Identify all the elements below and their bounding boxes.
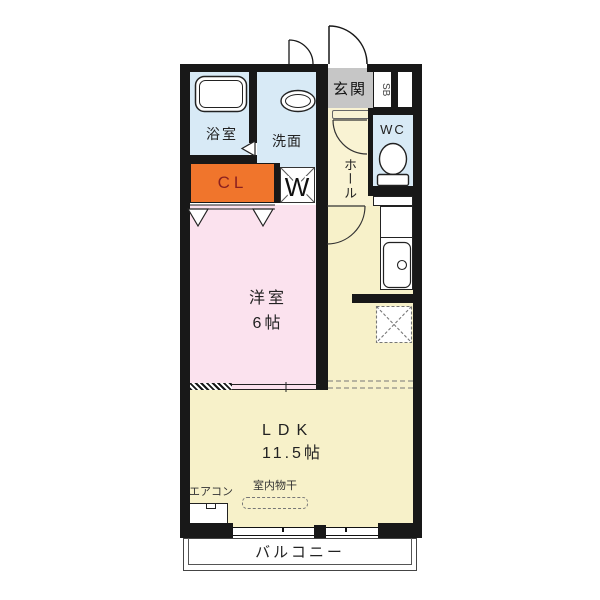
ldk-size: 11.5帖 [262, 445, 323, 462]
shoe-box-label: SB [374, 73, 391, 107]
wall-bottom-left [180, 523, 233, 538]
indoor-drying-label: 室内物干 [243, 480, 307, 493]
entrance-door [329, 26, 367, 64]
western-room-size: 6帖 [253, 315, 284, 332]
wall-left [180, 64, 190, 538]
kitchen-shelf [373, 196, 413, 206]
wall-right [413, 64, 422, 538]
utility-door [289, 40, 313, 64]
wall-sb-divider [392, 70, 397, 108]
balcony-label: バルコニー [183, 544, 417, 562]
washer-box [280, 167, 315, 203]
window-tick-left [282, 527, 284, 532]
wall-center-column [316, 64, 328, 390]
meter-box [397, 70, 413, 108]
kitchen-counter [380, 206, 413, 290]
western-room-label: 洋室 6帖 [215, 287, 321, 337]
hall-label: ホール [337, 149, 357, 209]
wall-bath-wash [249, 72, 257, 143]
wall-kitchen-bar [352, 294, 413, 303]
washroom-floor [257, 72, 316, 170]
floorplan-canvas: W 浴室 洗面 玄関 SB WC ホール CL 洋室 6帖 [0, 0, 600, 600]
wall-cl-washer [275, 163, 280, 203]
wall-below-wc [368, 186, 413, 196]
partition-hatch [190, 383, 232, 390]
entrance-label: 玄関 [326, 81, 374, 99]
wall-top-left [180, 64, 328, 72]
balcony-window [233, 527, 378, 536]
entrance-step [332, 110, 371, 119]
ldk-name: LDK [262, 422, 314, 439]
aircon-label: エアコン [186, 486, 236, 499]
aircon-notch [206, 503, 216, 509]
indoor-drying-bar [242, 497, 308, 509]
western-room-name: 洋室 [249, 290, 287, 307]
aircon-unit [189, 503, 228, 524]
window-tick-right [345, 527, 347, 532]
counter-divider [381, 207, 412, 238]
wall-below-bath [190, 155, 257, 163]
closet-label: CL [190, 173, 275, 193]
wall-below-sb [368, 108, 413, 115]
window-mullion [314, 525, 326, 538]
bathroom-label: 浴室 [196, 126, 248, 143]
washroom-label: 洗面 [258, 133, 316, 150]
wc-label: WC [373, 122, 413, 138]
wall-bottom-right [378, 523, 422, 538]
ldk-label: LDK 11.5帖 [262, 419, 372, 465]
ldk-floor-mid [328, 303, 413, 390]
